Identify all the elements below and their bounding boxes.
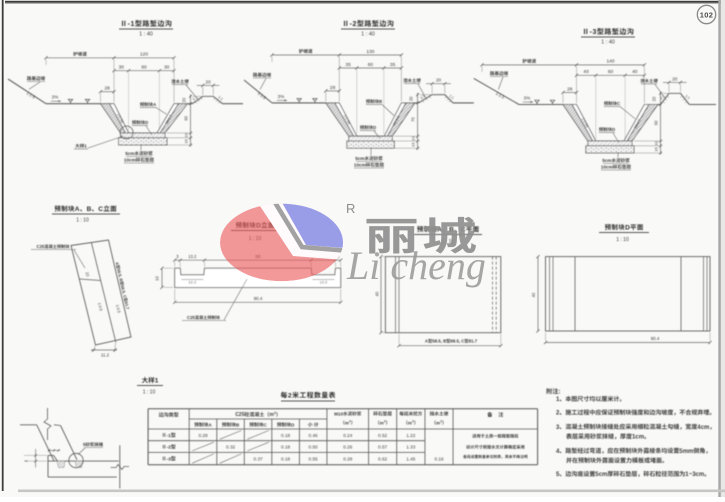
svg-text:60: 60: [141, 65, 147, 71]
svg-text:1: 1: [168, 433, 171, 439]
svg-text:m: m: [699, 472, 704, 478]
svg-text:0.18: 0.18: [281, 445, 291, 450]
svg-text:2: 2: [353, 21, 357, 28]
svg-text:0.16: 0.16: [434, 456, 444, 461]
svg-text:R: R: [346, 201, 355, 216]
svg-text:m: m: [130, 151, 134, 156]
svg-text:0.57: 0.57: [378, 445, 388, 450]
svg-text:0.24: 0.24: [343, 433, 353, 438]
svg-text:11.2: 11.2: [101, 353, 110, 358]
svg-text:10: 10: [155, 276, 160, 281]
svg-text:3%: 3%: [278, 94, 285, 99]
svg-text:A: A: [425, 339, 428, 344]
svg-text:120: 120: [140, 52, 148, 58]
svg-text:C: C: [461, 339, 464, 344]
svg-text:0.26: 0.26: [343, 445, 353, 450]
svg-text:60: 60: [368, 62, 374, 68]
svg-text:5: 5: [242, 412, 245, 418]
svg-text:102: 102: [700, 10, 713, 19]
svg-text:12.2: 12.2: [188, 280, 197, 285]
svg-text:3: 3: [168, 456, 171, 462]
svg-text:m: m: [704, 425, 709, 431]
svg-text:1 : 40: 1 : 40: [361, 32, 375, 38]
svg-text:40: 40: [583, 69, 589, 75]
svg-text:0.28: 0.28: [343, 456, 353, 461]
svg-text:90.4: 90.4: [651, 336, 660, 341]
svg-text:m: m: [132, 158, 136, 163]
svg-text:0.18: 0.18: [281, 433, 291, 438]
svg-text:20: 20: [182, 97, 187, 102]
svg-text:28: 28: [567, 87, 573, 93]
svg-text:12.2: 12.2: [320, 280, 329, 285]
svg-text:60: 60: [608, 69, 614, 75]
svg-text:B: B: [87, 206, 92, 213]
svg-text:0.62: 0.62: [378, 456, 388, 461]
svg-text:40: 40: [531, 292, 536, 297]
svg-text:1 : 10: 1 : 10: [616, 237, 629, 243]
svg-text:m: m: [380, 420, 384, 425]
svg-text:m: m: [607, 158, 611, 163]
svg-text:2: 2: [168, 445, 171, 451]
svg-text:D: D: [612, 127, 615, 132]
svg-text:m: m: [269, 412, 274, 418]
svg-text:0.18: 0.18: [281, 456, 291, 461]
svg-text:60: 60: [654, 120, 659, 125]
svg-text:Li cheng: Li cheng: [346, 243, 486, 288]
svg-text:m: m: [609, 165, 613, 170]
svg-text:m: m: [639, 435, 644, 441]
svg-text:0.50: 0.50: [309, 445, 319, 450]
svg-text:D: D: [373, 125, 376, 130]
svg-text:0.32: 0.32: [226, 445, 236, 450]
svg-text:D: D: [145, 120, 148, 125]
svg-text:15: 15: [411, 142, 416, 147]
svg-text:0.37: 0.37: [254, 456, 264, 461]
svg-text:140: 140: [606, 59, 614, 65]
svg-text:30: 30: [119, 65, 125, 71]
svg-text:0: 0: [341, 411, 344, 416]
svg-text:B: B: [443, 339, 446, 344]
svg-text:,: ,: [459, 339, 460, 344]
svg-text:m: m: [688, 449, 693, 455]
svg-text:m: m: [362, 163, 366, 168]
svg-text:m: m: [602, 472, 607, 478]
svg-text:1.45: 1.45: [406, 456, 416, 461]
svg-text:90.4: 90.4: [254, 296, 263, 301]
svg-text:1 : 40: 1 : 40: [601, 40, 615, 46]
svg-text:C: C: [98, 206, 103, 213]
svg-text:0.46: 0.46: [309, 433, 319, 438]
svg-text:1.22: 1.22: [406, 433, 416, 438]
svg-text:40: 40: [632, 69, 638, 75]
svg-text:1.33: 1.33: [406, 445, 416, 450]
svg-text:10: 10: [184, 132, 189, 137]
svg-text:20: 20: [672, 76, 678, 81]
svg-text:A: A: [75, 206, 80, 213]
svg-text:1 : 10: 1 : 10: [143, 390, 156, 396]
svg-text:3%: 3%: [52, 95, 59, 100]
svg-text:35: 35: [345, 62, 351, 68]
svg-text:1 : 40: 1 : 40: [139, 32, 153, 38]
svg-text:m: m: [436, 420, 440, 425]
svg-text:m: m: [360, 156, 364, 161]
svg-text:13.2: 13.2: [188, 254, 197, 259]
svg-text:1 : 10: 1 : 10: [76, 218, 89, 224]
svg-text:2: 2: [288, 393, 292, 400]
svg-text:15: 15: [654, 146, 659, 151]
svg-text:20: 20: [206, 79, 212, 84]
svg-text:15: 15: [184, 138, 189, 143]
svg-text:0.55: 0.55: [309, 456, 319, 461]
svg-text:m: m: [408, 420, 412, 425]
svg-text:3%: 3%: [524, 96, 531, 101]
svg-text:30: 30: [164, 65, 170, 71]
svg-text:130: 130: [366, 49, 374, 55]
svg-text:20: 20: [652, 96, 657, 101]
svg-text:35: 35: [390, 62, 396, 68]
svg-text:m: m: [345, 420, 349, 425]
svg-text:40: 40: [375, 291, 380, 296]
svg-text:10: 10: [411, 136, 416, 141]
svg-text:20: 20: [436, 78, 442, 83]
svg-text:70: 70: [411, 117, 416, 122]
svg-text:0.28: 0.28: [198, 433, 208, 438]
svg-text:0.52: 0.52: [378, 433, 388, 438]
svg-text:60: 60: [184, 115, 189, 120]
svg-text:20: 20: [409, 96, 414, 101]
svg-text:1: 1: [84, 144, 87, 149]
svg-text:D: D: [625, 225, 630, 232]
svg-text:28: 28: [105, 86, 111, 92]
svg-text:3: 3: [593, 29, 597, 36]
svg-text:,: ,: [441, 339, 442, 344]
svg-text:B: B: [379, 99, 382, 104]
svg-text:10: 10: [654, 140, 659, 145]
svg-text::: :: [558, 389, 560, 396]
svg-text:28: 28: [330, 85, 336, 91]
svg-text:1: 1: [155, 378, 159, 385]
svg-text:1: 1: [131, 21, 135, 28]
